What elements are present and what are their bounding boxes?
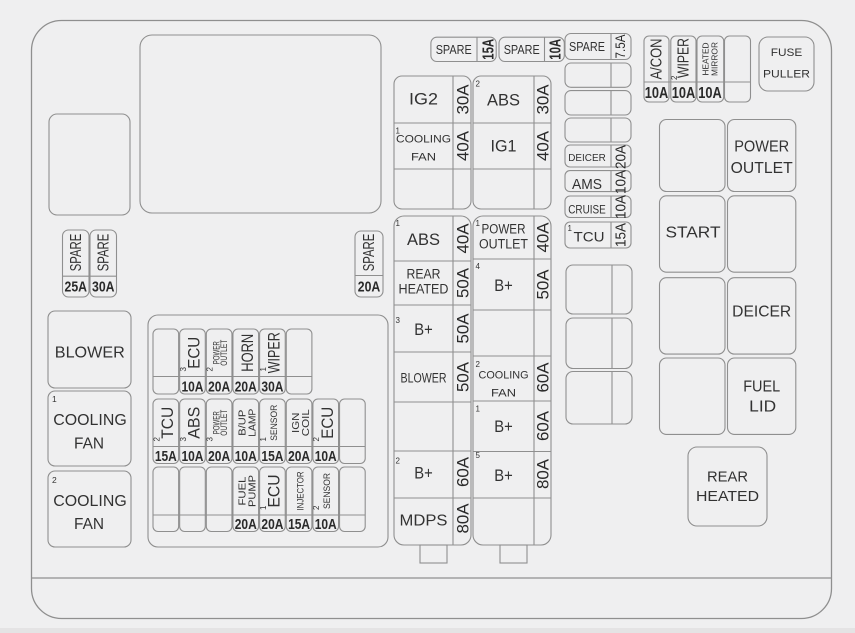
svg-text:10A: 10A xyxy=(672,85,696,102)
svg-text:B+: B+ xyxy=(414,464,433,482)
svg-text:50A: 50A xyxy=(534,270,552,300)
svg-text:2: 2 xyxy=(476,80,481,89)
svg-text:START: START xyxy=(666,224,722,241)
svg-text:20A: 20A xyxy=(235,380,257,396)
svg-text:50A: 50A xyxy=(454,268,472,298)
svg-text:30A: 30A xyxy=(454,85,472,115)
svg-text:MDPS: MDPS xyxy=(400,512,448,529)
svg-text:10A: 10A xyxy=(698,85,722,102)
svg-text:AMS: AMS xyxy=(572,176,602,193)
svg-text:50A: 50A xyxy=(454,314,472,344)
svg-text:SENSOR: SENSOR xyxy=(269,405,280,441)
svg-text:FUSE: FUSE xyxy=(771,47,803,59)
svg-text:1: 1 xyxy=(568,224,573,233)
svg-text:POWER: POWER xyxy=(482,221,526,236)
svg-text:COOLING: COOLING xyxy=(396,134,451,146)
svg-text:PUMP: PUMP xyxy=(247,475,259,507)
svg-text:10A: 10A xyxy=(235,449,257,465)
svg-text:IG2: IG2 xyxy=(409,90,438,108)
svg-text:B+: B+ xyxy=(494,418,513,436)
svg-text:30A: 30A xyxy=(261,380,283,396)
svg-text:IG1: IG1 xyxy=(491,137,517,155)
svg-text:15A: 15A xyxy=(480,38,497,59)
svg-text:10A: 10A xyxy=(612,195,629,219)
svg-text:20A: 20A xyxy=(208,380,230,396)
svg-text:2: 2 xyxy=(312,505,321,510)
svg-text:2: 2 xyxy=(152,437,161,442)
svg-text:B+: B+ xyxy=(414,321,433,339)
svg-text:15A: 15A xyxy=(288,517,310,533)
svg-text:BLOWER: BLOWER xyxy=(55,345,125,362)
svg-text:OUTLET: OUTLET xyxy=(731,160,794,177)
svg-text:LAMP: LAMP xyxy=(247,408,258,436)
svg-text:MIRROR: MIRROR xyxy=(710,42,719,76)
svg-text:7.5A: 7.5A xyxy=(613,35,628,59)
svg-text:15A: 15A xyxy=(155,449,177,465)
svg-text:A/CON: A/CON xyxy=(648,39,665,80)
svg-text:PULLER: PULLER xyxy=(763,69,810,81)
svg-text:1: 1 xyxy=(259,367,268,372)
svg-text:2: 2 xyxy=(312,437,321,442)
svg-text:20A: 20A xyxy=(288,449,310,465)
svg-text:B+: B+ xyxy=(494,277,513,295)
svg-text:ABS: ABS xyxy=(487,91,520,109)
svg-text:CRUISE: CRUISE xyxy=(568,205,606,217)
svg-text:2: 2 xyxy=(476,360,481,369)
svg-text:FAN: FAN xyxy=(74,516,104,533)
svg-text:FAN: FAN xyxy=(491,388,516,400)
svg-text:40A: 40A xyxy=(534,223,552,253)
svg-text:1: 1 xyxy=(259,437,268,442)
svg-text:60A: 60A xyxy=(534,363,552,393)
svg-text:FUEL: FUEL xyxy=(743,379,780,396)
svg-text:20A: 20A xyxy=(612,145,629,169)
svg-text:10A: 10A xyxy=(612,170,629,194)
svg-text:3: 3 xyxy=(179,367,188,372)
svg-text:OUTLET: OUTLET xyxy=(219,339,229,365)
svg-text:5: 5 xyxy=(476,451,481,460)
svg-text:REAR: REAR xyxy=(707,468,748,485)
svg-text:1: 1 xyxy=(476,219,481,228)
svg-text:INJECTOR: INJECTOR xyxy=(296,471,307,510)
svg-text:1: 1 xyxy=(52,394,57,404)
svg-text:ABS: ABS xyxy=(185,407,204,439)
svg-text:WIPER: WIPER xyxy=(265,332,283,373)
svg-text:3: 3 xyxy=(206,437,215,442)
svg-text:10A: 10A xyxy=(547,38,564,59)
svg-text:OUTLET: OUTLET xyxy=(479,236,528,251)
svg-text:1: 1 xyxy=(476,405,481,414)
svg-text:15A: 15A xyxy=(612,223,629,247)
svg-text:OUTLET: OUTLET xyxy=(219,409,229,435)
svg-text:SPARE: SPARE xyxy=(361,234,378,272)
svg-text:2: 2 xyxy=(670,75,679,80)
svg-text:HEATED: HEATED xyxy=(701,42,710,75)
svg-text:COOLING: COOLING xyxy=(53,493,127,510)
svg-text:SPARE: SPARE xyxy=(96,234,113,272)
svg-text:ECU: ECU xyxy=(265,475,284,508)
svg-text:FAN: FAN xyxy=(74,435,104,452)
svg-text:SENSOR: SENSOR xyxy=(322,473,333,509)
svg-text:REAR: REAR xyxy=(407,266,441,281)
svg-text:2: 2 xyxy=(206,367,215,372)
svg-text:SPARE: SPARE xyxy=(569,39,605,54)
svg-text:60A: 60A xyxy=(454,457,472,487)
svg-text:20A: 20A xyxy=(235,517,257,533)
svg-text:10A: 10A xyxy=(181,449,203,465)
svg-text:LID: LID xyxy=(749,398,776,415)
svg-text:1: 1 xyxy=(396,219,401,228)
svg-text:HEATED: HEATED xyxy=(399,281,449,296)
svg-text:ABS: ABS xyxy=(407,231,440,249)
svg-text:50A: 50A xyxy=(454,362,472,392)
svg-text:B+: B+ xyxy=(494,467,513,485)
svg-text:COIL: COIL xyxy=(300,409,312,436)
svg-text:40A: 40A xyxy=(534,131,552,161)
svg-text:DEICER: DEICER xyxy=(732,304,791,321)
svg-text:TCU: TCU xyxy=(574,229,605,245)
svg-text:30A: 30A xyxy=(92,280,115,296)
svg-text:DEICER: DEICER xyxy=(568,152,606,164)
svg-text:FAN: FAN xyxy=(411,152,436,164)
svg-text:2: 2 xyxy=(52,475,57,485)
svg-text:WIPER: WIPER xyxy=(675,38,692,78)
svg-text:1: 1 xyxy=(259,505,268,510)
svg-text:40A: 40A xyxy=(454,224,472,254)
svg-text:TCU: TCU xyxy=(158,407,177,439)
svg-text:40A: 40A xyxy=(454,131,472,161)
svg-text:3: 3 xyxy=(396,316,401,325)
svg-text:10A: 10A xyxy=(315,517,337,533)
svg-text:20A: 20A xyxy=(208,449,230,465)
svg-text:SPARE: SPARE xyxy=(504,42,540,57)
svg-text:20A: 20A xyxy=(358,280,381,296)
svg-text:COOLING: COOLING xyxy=(53,412,127,429)
svg-text:30A: 30A xyxy=(534,85,552,115)
svg-text:SPARE: SPARE xyxy=(68,234,85,272)
svg-text:10A: 10A xyxy=(315,449,337,465)
svg-text:80A: 80A xyxy=(534,459,552,489)
svg-text:SPARE: SPARE xyxy=(436,42,472,57)
svg-text:20A: 20A xyxy=(261,517,283,533)
svg-text:ECU: ECU xyxy=(318,407,337,439)
svg-text:25A: 25A xyxy=(65,280,88,296)
svg-text:2: 2 xyxy=(396,457,401,466)
svg-text:60A: 60A xyxy=(534,411,552,441)
svg-text:BLOWER: BLOWER xyxy=(401,370,447,386)
svg-text:HORN: HORN xyxy=(238,334,257,372)
svg-text:15A: 15A xyxy=(261,449,283,465)
svg-text:3: 3 xyxy=(179,437,188,442)
svg-text:COOLING: COOLING xyxy=(479,370,529,382)
svg-text:10A: 10A xyxy=(645,85,669,102)
svg-text:80A: 80A xyxy=(454,504,472,534)
svg-text:10A: 10A xyxy=(181,380,203,396)
svg-text:4: 4 xyxy=(476,262,481,271)
svg-text:HEATED: HEATED xyxy=(696,488,759,505)
svg-text:ECU: ECU xyxy=(185,337,204,369)
svg-text:POWER: POWER xyxy=(734,138,789,155)
